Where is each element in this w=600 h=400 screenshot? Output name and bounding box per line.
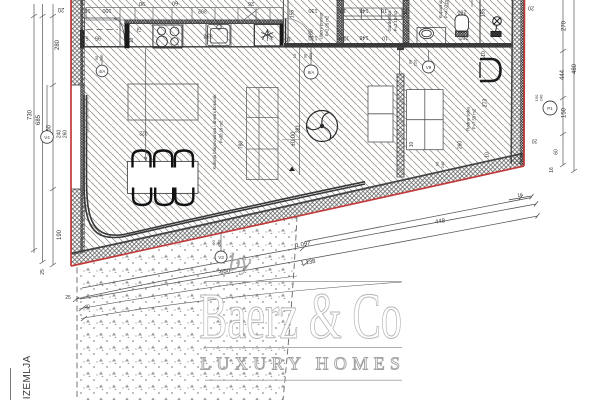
- svg-text:10: 10: [340, 7, 346, 13]
- svg-text:10: 10: [403, 9, 409, 15]
- svg-text:100: 100: [102, 7, 111, 13]
- svg-text:322: 322: [139, 129, 148, 135]
- svg-text:5: 5: [85, 34, 88, 40]
- svg-text:260: 260: [63, 130, 69, 139]
- svg-text:150: 150: [562, 107, 568, 118]
- svg-text:260: 260: [457, 8, 466, 14]
- svg-text:V9: V9: [426, 65, 432, 70]
- svg-text:P=7.55 m2: P=7.55 m2: [472, 108, 477, 129]
- svg-text:P=38.19 m2: P=38.19 m2: [219, 120, 224, 143]
- svg-text:10: 10: [292, 53, 297, 58]
- svg-text:240: 240: [440, 161, 445, 168]
- svg-text:Kupaonica: Kupaonica: [438, 0, 443, 18]
- svg-text:155: 155: [481, 9, 487, 18]
- svg-text:10: 10: [344, 34, 350, 40]
- svg-text:zaglavlje 240/240 klizna: zaglavlje 240/240 klizna: [86, 97, 90, 133]
- svg-text:220: 220: [308, 52, 313, 59]
- svg-text:95: 95: [95, 34, 101, 40]
- svg-text:10: 10: [481, 51, 487, 57]
- svg-text:P=4.07 m2: P=4.07 m2: [444, 0, 449, 18]
- svg-text:75: 75: [137, 27, 143, 33]
- svg-text:V3: V3: [218, 255, 224, 260]
- svg-text:90: 90: [435, 161, 440, 166]
- svg-text:25: 25: [40, 269, 46, 275]
- svg-text:Baerz & Co: Baerz & Co: [199, 280, 402, 353]
- svg-text:240: 240: [539, 94, 544, 101]
- svg-text:220: 220: [413, 59, 418, 66]
- svg-text:148: 148: [359, 34, 368, 40]
- svg-text:Garderoba: Garderoba: [387, 10, 392, 32]
- svg-text:26: 26: [248, 0, 254, 6]
- svg-text:220: 220: [99, 54, 104, 61]
- svg-text:180: 180: [309, 29, 315, 38]
- svg-text:780: 780: [239, 141, 245, 150]
- svg-text:P=2.19 m2: P=2.19 m2: [393, 10, 398, 31]
- svg-text:by: by: [229, 250, 252, 276]
- svg-text:10: 10: [129, 38, 135, 44]
- svg-text:16: 16: [549, 167, 555, 173]
- svg-text:Radna soba: Radna soba: [466, 107, 471, 131]
- svg-text:Kuhinja blagovaonica i dnevni: Kuhinja blagovaonica i dnevni boravak: [212, 94, 217, 170]
- svg-text:90: 90: [303, 53, 308, 58]
- svg-text:392: 392: [198, 7, 207, 13]
- svg-text:10: 10: [409, 142, 415, 148]
- svg-text:392: 392: [203, 32, 212, 38]
- svg-text:60: 60: [554, 149, 560, 155]
- svg-text:10: 10: [285, 35, 291, 41]
- svg-text:130: 130: [308, 7, 317, 13]
- svg-text:273: 273: [483, 99, 489, 108]
- svg-text:4/A: 4/A: [99, 69, 106, 74]
- svg-text:260: 260: [459, 34, 468, 40]
- svg-text:20: 20: [57, 6, 64, 12]
- svg-text:381: 381: [296, 125, 302, 134]
- svg-text:10: 10: [382, 34, 388, 40]
- svg-text:148: 148: [359, 7, 368, 13]
- svg-text:20: 20: [528, 4, 534, 10]
- svg-text:280: 280: [55, 39, 61, 50]
- svg-text:Ulazni prostor: Ulazni prostor: [319, 12, 324, 40]
- svg-text:25: 25: [65, 295, 71, 301]
- svg-text:685: 685: [36, 114, 42, 125]
- svg-text:8/A: 8/A: [308, 70, 315, 75]
- svg-text:P=2.05 m2: P=2.05 m2: [325, 15, 330, 36]
- svg-text:155: 155: [290, 10, 296, 19]
- svg-text:PRIZEMLJA: PRIZEMLJA: [22, 355, 33, 400]
- svg-text:P1: P1: [547, 106, 553, 111]
- svg-text:60: 60: [172, 0, 178, 5]
- svg-text:190: 190: [57, 229, 63, 240]
- svg-text:90: 90: [211, 240, 216, 245]
- svg-text:270: 270: [562, 20, 568, 31]
- svg-text:V4: V4: [44, 135, 50, 140]
- svg-text:10: 10: [485, 152, 491, 158]
- svg-text:20: 20: [532, 138, 538, 144]
- svg-text:730: 730: [28, 109, 34, 120]
- svg-text:260: 260: [458, 141, 464, 150]
- svg-text:444: 444: [560, 69, 566, 80]
- svg-text:480: 480: [572, 63, 578, 74]
- svg-text:90: 90: [139, 0, 145, 6]
- svg-text:10: 10: [84, 7, 90, 13]
